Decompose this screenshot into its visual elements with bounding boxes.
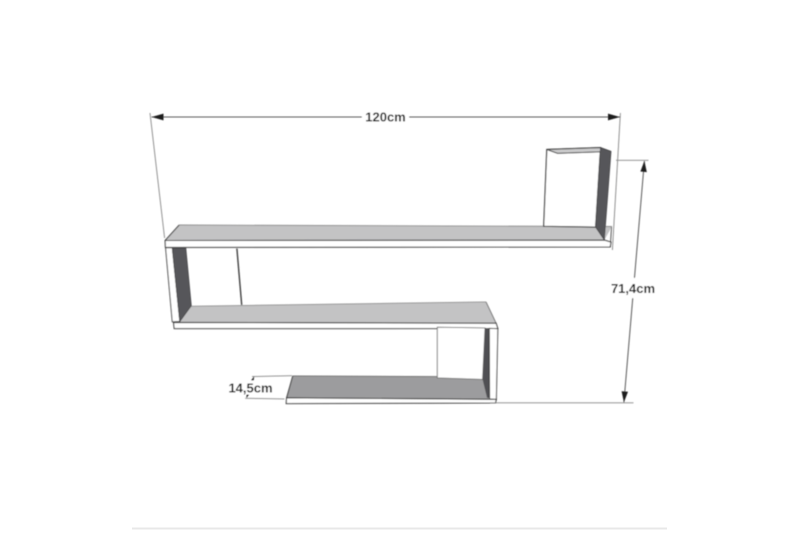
svg-text:120cm: 120cm: [365, 110, 405, 125]
svg-text:14,5cm: 14,5cm: [228, 381, 272, 396]
svg-text:71,4cm: 71,4cm: [611, 281, 655, 296]
